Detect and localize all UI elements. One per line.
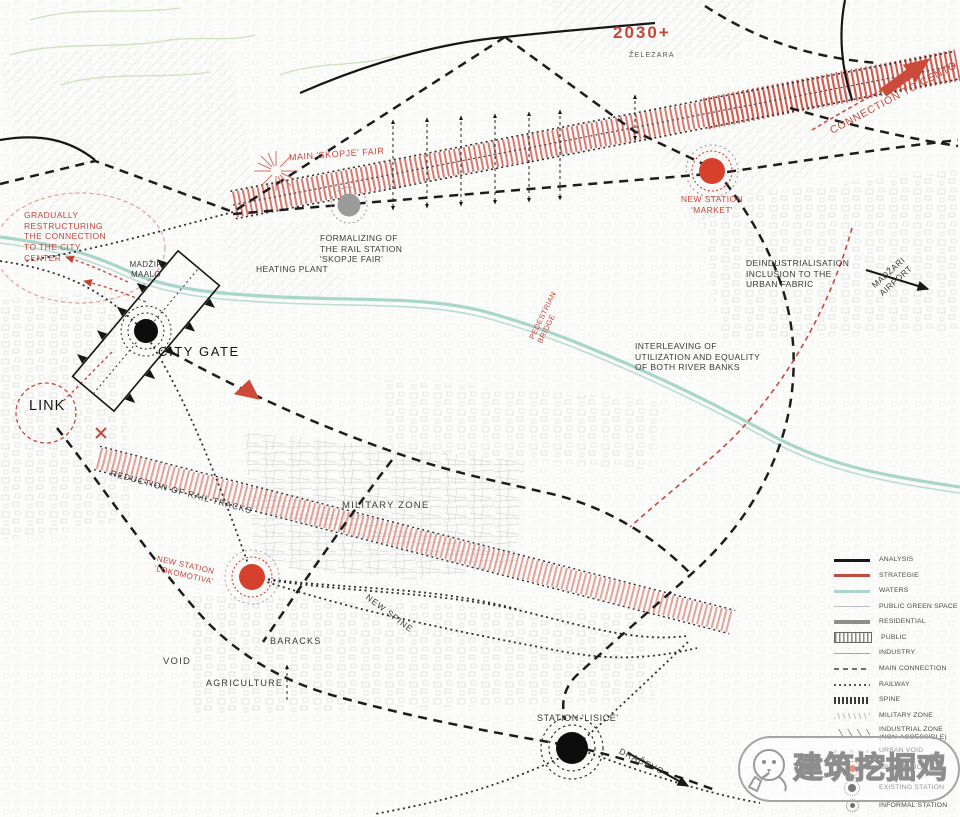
legend-label: INFORMAL STATION	[879, 802, 947, 810]
legend-item-residential: RESIDENTIAL	[834, 616, 960, 628]
legend-label: MAIN CONNECTION	[879, 665, 947, 673]
legend-label: ANALYSIS	[879, 556, 913, 564]
legend-sample-spine-band	[834, 697, 870, 704]
legend-sample-strategie-line	[834, 574, 870, 577]
masterplan-map: 2030+ ŽELEZARA CONNECTION TO CENTO MAIN …	[0, 0, 960, 817]
legend-sample-waters-line	[834, 590, 870, 593]
label-zelezara: ŽELEZARA	[629, 52, 675, 61]
legend-sample-military-hatch	[834, 713, 870, 719]
legend-sample-main-connection-line	[834, 668, 870, 670]
legend-label: PUBLIC GREEN SPACE	[879, 603, 958, 611]
watermark: 建筑挖掘鸡	[738, 736, 960, 802]
legend-item-military-zone: MILITARY ZONE	[834, 710, 960, 722]
label-interleaving: INTERLEAVING OF UTILIZATION AND EQUALITY…	[635, 341, 760, 373]
legend-label: PUBLIC	[881, 634, 907, 642]
watermark-text: 建筑挖掘鸡	[793, 754, 948, 784]
label-agriculture: AGRICULTURE	[206, 678, 283, 689]
legend-sample-public-box	[834, 632, 872, 643]
legend-item-strategie: STRATEGIE	[834, 570, 960, 582]
label-baracks: BARACKS	[270, 636, 321, 647]
legend-sample-green-line	[834, 606, 870, 607]
legend-sample-analysis-line	[834, 559, 870, 562]
label-gradually-restructuring: GRADUALLY RESTRUCTURING THE CONNECTION T…	[24, 210, 106, 263]
legend-item-analysis: ANALYSIS	[834, 554, 960, 566]
station-new-market-dot	[699, 158, 725, 184]
legend-label: MILITARY ZONE	[879, 712, 933, 720]
legend-item-waters: WATERS	[834, 585, 960, 597]
label-city-gate: CITY GATE	[158, 344, 240, 360]
legend-item-public-green-space: PUBLIC GREEN SPACE	[834, 601, 960, 613]
label-year-2030: 2030+	[613, 22, 671, 43]
station-informal-fair-dot	[338, 194, 361, 217]
legend-sample-residential-line	[834, 620, 870, 624]
legend-item-public: PUBLIC	[834, 632, 960, 644]
legend-item-main-connection: MAIN CONNECTION	[834, 663, 960, 675]
map-drawing	[0, 0, 960, 817]
label-new-station-market: NEW STATION 'MARKET'	[668, 194, 756, 215]
legend-label: RAILWAY	[879, 681, 910, 689]
excavator-chick-logo-icon	[745, 743, 793, 795]
legend-sample-railway-line	[834, 684, 870, 686]
label-station-lisice: STATION 'LISICE'	[537, 713, 619, 724]
legend-label: STRATEGIE	[879, 572, 919, 580]
label-formalizing: FORMALIZING OF THE RAIL STATION 'SKOPJE …	[320, 233, 402, 265]
legend-item-industry: INDUSTRY	[834, 648, 960, 660]
label-madzir-maalo: MADŽIR MAALO	[118, 260, 174, 280]
label-military-zone: MILITARY ZONE	[342, 500, 429, 512]
label-heating-plant: HEATING PLANT	[256, 264, 328, 275]
label-link: LINK	[29, 397, 65, 415]
legend-label: SPINE	[879, 696, 900, 704]
legend-label: RESIDENTIAL	[879, 618, 926, 626]
legend-item-spine: SPINE	[834, 694, 960, 706]
legend-sample-industry-line	[834, 653, 870, 654]
station-lisice-dot	[556, 732, 588, 764]
legend-label: INDUSTRY	[879, 649, 915, 657]
legend-item-railway: RAILWAY	[834, 679, 960, 691]
label-void: VOID	[163, 656, 191, 668]
label-deindustrialisation: DEINDUSTRIALISATION INCLUSION TO THE URB…	[746, 258, 849, 290]
legend-label: WATERS	[879, 587, 909, 595]
